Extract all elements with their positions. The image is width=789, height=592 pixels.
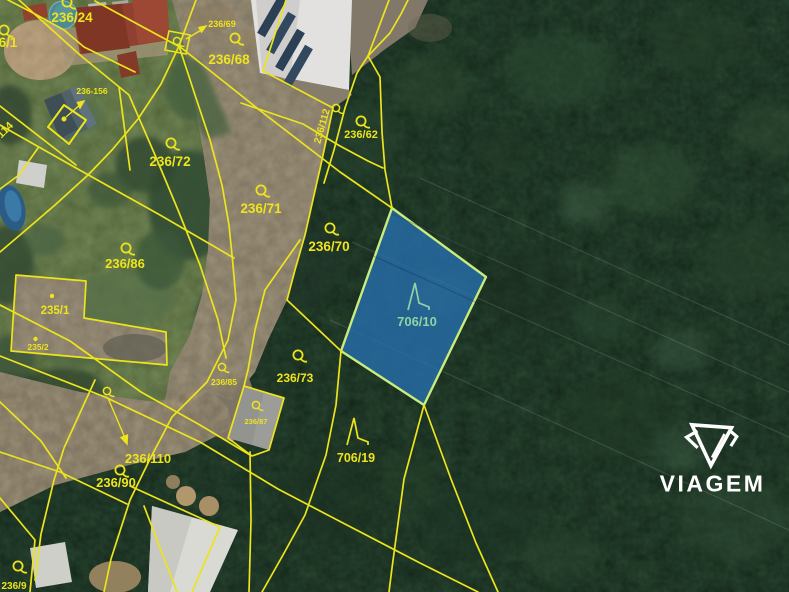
svg-text:236/90: 236/90 bbox=[96, 475, 136, 490]
svg-text:236/70: 236/70 bbox=[308, 239, 349, 254]
svg-text:706/19: 706/19 bbox=[337, 451, 375, 465]
svg-text:235/1: 235/1 bbox=[41, 305, 70, 317]
svg-text:236/87: 236/87 bbox=[245, 417, 268, 426]
svg-text:236/69: 236/69 bbox=[208, 19, 236, 29]
svg-text:236/72: 236/72 bbox=[149, 154, 190, 169]
svg-text:236/24: 236/24 bbox=[51, 10, 93, 25]
svg-text:6/1: 6/1 bbox=[0, 35, 18, 50]
svg-text:236/71: 236/71 bbox=[240, 201, 282, 216]
svg-text:236/62: 236/62 bbox=[344, 129, 378, 141]
svg-text:235/2: 235/2 bbox=[27, 342, 49, 352]
svg-text:236/68: 236/68 bbox=[208, 52, 250, 67]
svg-text:706/10: 706/10 bbox=[397, 314, 437, 329]
svg-text:236-156: 236-156 bbox=[76, 86, 107, 96]
svg-text:236/85: 236/85 bbox=[211, 377, 237, 387]
svg-text:236/9: 236/9 bbox=[1, 581, 26, 592]
svg-text:236/110: 236/110 bbox=[125, 451, 171, 466]
svg-text:VIAGEM: VIAGEM bbox=[660, 471, 766, 497]
svg-text:236/73: 236/73 bbox=[277, 371, 314, 385]
svg-text:236/86: 236/86 bbox=[105, 256, 145, 271]
